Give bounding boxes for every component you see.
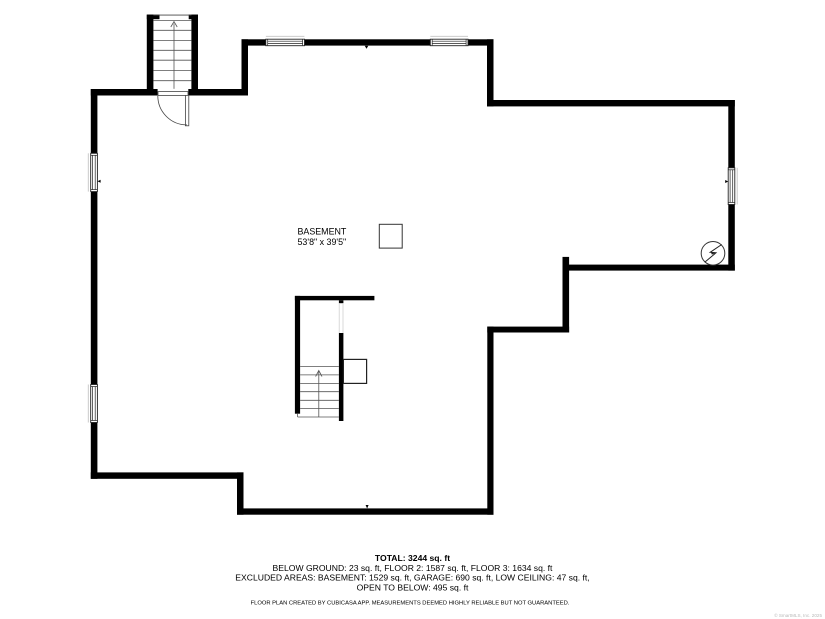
svg-text:BASEMENT: BASEMENT [298,227,347,237]
svg-text:TOTAL: 3244 sq. ft: TOTAL: 3244 sq. ft [375,553,450,563]
svg-text:FLOOR PLAN CREATED BY CUBICASA: FLOOR PLAN CREATED BY CUBICASA APP. MEAS… [251,601,570,607]
svg-text:EXCLUDED AREAS: BASEMENT: 1529: EXCLUDED AREAS: BASEMENT: 1529 sq. ft, G… [235,573,589,583]
svg-text:OPEN TO BELOW: 495 sq. ft: OPEN TO BELOW: 495 sq. ft [357,582,469,592]
svg-text:BELOW GROUND: 23 sq. ft, FLOOR: BELOW GROUND: 23 sq. ft, FLOOR 2: 1587 s… [273,563,553,573]
svg-text:© SmartMLS, Inc. 2025: © SmartMLS, Inc. 2025 [774,612,822,618]
svg-text:53'8" x 39'5": 53'8" x 39'5" [298,237,347,247]
